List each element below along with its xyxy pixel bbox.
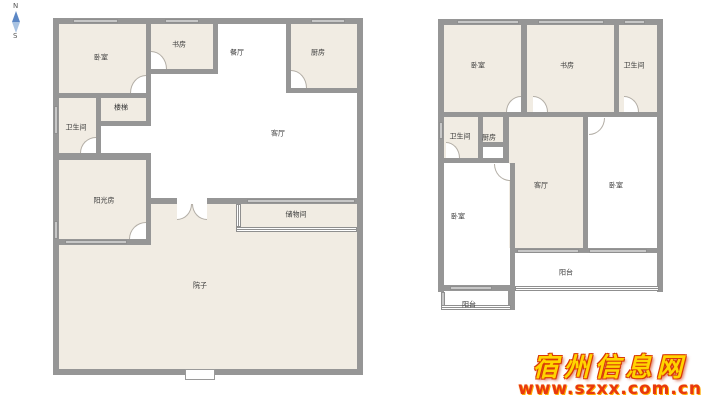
window <box>589 249 647 253</box>
wall <box>146 24 151 126</box>
wall <box>151 69 218 74</box>
wall <box>614 19 619 117</box>
window <box>517 249 579 253</box>
room-label-stairs: 楼梯 <box>114 105 128 112</box>
room-label-storage: 储物间 <box>286 212 307 219</box>
room-label-study: 书房 <box>172 42 186 49</box>
wall <box>96 98 101 156</box>
window <box>439 122 443 139</box>
wall <box>213 24 218 74</box>
window <box>457 20 519 24</box>
wall <box>438 112 663 117</box>
wall <box>521 19 527 117</box>
watermark-site-url: www.szxx.com.cn <box>518 379 702 399</box>
room-label-balcony-small: 阳台 <box>462 302 476 309</box>
room-label-yard: 院子 <box>193 283 207 290</box>
window <box>538 20 604 24</box>
window <box>236 227 357 232</box>
wall <box>96 121 151 126</box>
room-label-kitchen: 厨房 <box>482 135 496 142</box>
wall <box>286 88 357 93</box>
window <box>54 221 58 239</box>
room-label-kitchen: 厨房 <box>311 50 325 57</box>
room-label-bathroom1: 卫生间 <box>624 63 645 70</box>
room-label-balcony-main: 阳台 <box>559 270 573 277</box>
window <box>624 20 645 24</box>
wall <box>357 18 363 375</box>
room-label-dining: 餐厅 <box>230 50 244 57</box>
yard-gate <box>185 369 215 380</box>
window <box>515 286 659 291</box>
wall <box>53 18 59 375</box>
window <box>236 204 241 227</box>
compass-north-label: N <box>13 2 18 10</box>
wall <box>438 19 444 292</box>
window <box>54 106 58 134</box>
compass-needle-icon <box>12 11 20 22</box>
wall <box>59 93 151 98</box>
door-arc <box>589 118 605 135</box>
wall <box>438 158 509 163</box>
watermark: 宿州信息网 www.szxx.com.cn <box>518 347 702 399</box>
window <box>311 19 345 23</box>
wall <box>583 112 588 253</box>
window <box>165 19 199 23</box>
window <box>441 305 511 310</box>
room-label-sunroom: 阳光房 <box>94 198 115 205</box>
wall <box>510 163 515 291</box>
room-label-bedroom2: 卧室 <box>609 183 623 190</box>
floor-plan-canvas: N S 卧室 书房 餐厅 厨房 客厅 楼梯 卫生间 阳 <box>0 0 720 405</box>
room-label-study: 书房 <box>560 63 574 70</box>
room-label-bathroom2: 卫生间 <box>450 134 471 141</box>
room-label-bedroom1: 卧室 <box>471 63 485 70</box>
wall <box>53 153 151 160</box>
window <box>247 199 355 203</box>
wall <box>503 117 509 163</box>
left-living-area <box>151 126 357 198</box>
room-label-living: 客厅 <box>271 131 285 138</box>
door-arc <box>494 164 510 181</box>
room-label-bedroom3: 卧室 <box>451 214 465 221</box>
compass-south-label: S <box>13 32 17 40</box>
window <box>450 286 492 290</box>
room-label-living: 客厅 <box>534 183 548 190</box>
room-label-bathroom: 卫生间 <box>66 125 87 132</box>
window <box>73 19 118 23</box>
wall <box>483 142 509 147</box>
room-label-bedroom: 卧室 <box>94 55 108 62</box>
window <box>65 240 127 244</box>
